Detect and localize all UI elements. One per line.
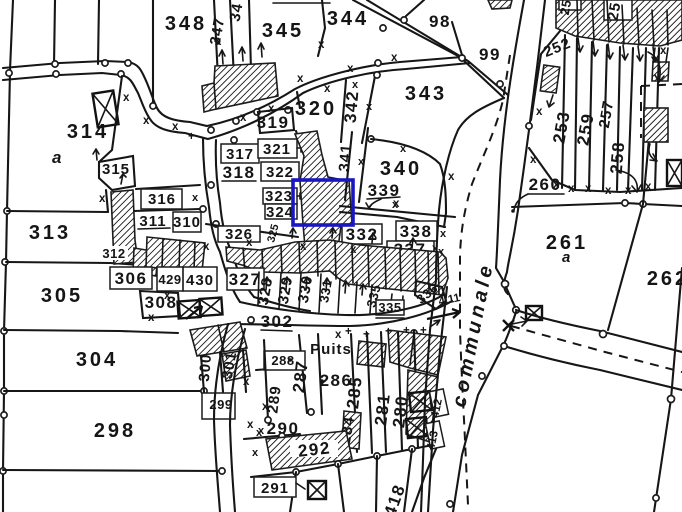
svg-text:x: x	[440, 228, 447, 240]
svg-text:341: 341	[336, 143, 355, 172]
svg-text:342: 342	[341, 89, 363, 123]
svg-text:+: +	[345, 326, 352, 338]
svg-text:344: 344	[327, 8, 369, 30]
svg-text:314: 314	[67, 121, 109, 143]
svg-text:306: 306	[115, 269, 148, 288]
svg-text:285: 285	[343, 375, 366, 410]
svg-text:Puits: Puits	[310, 341, 352, 358]
svg-text:310: 310	[173, 214, 201, 231]
svg-text:x: x	[625, 185, 632, 197]
svg-text:343: 343	[405, 83, 447, 105]
svg-text:312: 312	[102, 246, 125, 261]
svg-text:x: x	[246, 237, 253, 249]
svg-text:316: 316	[148, 191, 176, 208]
svg-text:292: 292	[297, 438, 332, 460]
svg-text:x: x	[350, 244, 357, 256]
svg-text:338: 338	[400, 222, 433, 241]
svg-text:99: 99	[479, 45, 501, 64]
svg-text:x: x	[148, 312, 155, 324]
svg-text:320: 320	[295, 98, 337, 120]
svg-text:291: 291	[261, 480, 289, 497]
svg-text:x: x	[243, 376, 250, 388]
svg-text:262: 262	[647, 268, 682, 290]
svg-text:a: a	[562, 249, 570, 266]
svg-text:305: 305	[41, 285, 83, 307]
svg-text:x: x	[358, 156, 365, 168]
svg-text:324: 324	[266, 204, 294, 221]
svg-text:+: +	[363, 329, 370, 341]
svg-text:25: 25	[557, 0, 574, 16]
svg-text:x: x	[262, 401, 269, 413]
svg-text:287: 287	[289, 359, 312, 394]
svg-text:x: x	[568, 183, 575, 195]
svg-text:+: +	[420, 325, 427, 337]
svg-text:x: x	[585, 183, 592, 195]
svg-text:317: 317	[226, 146, 254, 163]
svg-text:x: x	[247, 419, 254, 431]
svg-text:x: x	[215, 36, 222, 48]
svg-text:x: x	[660, 45, 667, 57]
svg-text:304: 304	[76, 349, 118, 371]
svg-text:x: x	[400, 143, 407, 155]
svg-text:313: 313	[29, 222, 71, 244]
svg-text:x: x	[318, 39, 325, 51]
svg-text:345: 345	[262, 20, 304, 42]
svg-text:x: x	[553, 179, 560, 191]
svg-text:348: 348	[165, 13, 207, 35]
svg-text:+: +	[403, 325, 410, 337]
svg-text:x: x	[256, 427, 263, 439]
svg-text:98: 98	[429, 12, 451, 31]
svg-text:x: x	[536, 106, 543, 118]
svg-text:x: x	[240, 112, 247, 124]
svg-text:299: 299	[209, 397, 232, 412]
svg-text:+: +	[188, 131, 195, 143]
svg-text:322: 322	[266, 164, 294, 181]
svg-text:x: x	[143, 115, 150, 127]
svg-text:308: 308	[145, 293, 178, 312]
svg-text:x: x	[432, 243, 439, 255]
svg-text:x: x	[99, 193, 106, 205]
svg-text:a: a	[52, 148, 61, 167]
svg-text:34: 34	[227, 2, 247, 23]
svg-text:315: 315	[102, 161, 130, 178]
svg-text:300: 300	[196, 353, 215, 382]
svg-text:x: x	[335, 329, 342, 341]
svg-text:x: x	[605, 185, 612, 197]
svg-text:x: x	[448, 171, 455, 183]
svg-text:430: 430	[186, 272, 214, 289]
svg-text:319: 319	[257, 113, 290, 132]
svg-text:429: 429	[158, 272, 181, 287]
svg-text:x: x	[300, 241, 307, 253]
svg-text:x: x	[268, 103, 275, 115]
svg-text:x: x	[352, 79, 359, 91]
svg-text:318: 318	[223, 163, 256, 182]
svg-text:x: x	[164, 290, 171, 302]
svg-text:323: 323	[265, 188, 293, 205]
svg-text:x: x	[324, 83, 331, 95]
svg-text:+: +	[385, 326, 392, 338]
svg-text:x: x	[366, 101, 373, 113]
svg-text:x: x	[123, 92, 130, 104]
svg-text:340: 340	[380, 158, 422, 180]
svg-text:327: 327	[229, 270, 262, 289]
svg-text:x: x	[391, 52, 398, 64]
svg-text:x: x	[172, 121, 179, 133]
svg-text:x: x	[645, 181, 652, 193]
svg-text:x: x	[252, 447, 259, 459]
svg-text:x: x	[530, 154, 537, 166]
svg-text:321: 321	[263, 141, 291, 158]
svg-text:x: x	[203, 241, 210, 253]
svg-text:x: x	[393, 198, 400, 210]
svg-text:298: 298	[94, 420, 136, 442]
svg-text:x: x	[297, 73, 304, 85]
svg-text:302: 302	[261, 312, 294, 331]
svg-text:x: x	[192, 192, 199, 204]
svg-text:x: x	[347, 63, 354, 75]
